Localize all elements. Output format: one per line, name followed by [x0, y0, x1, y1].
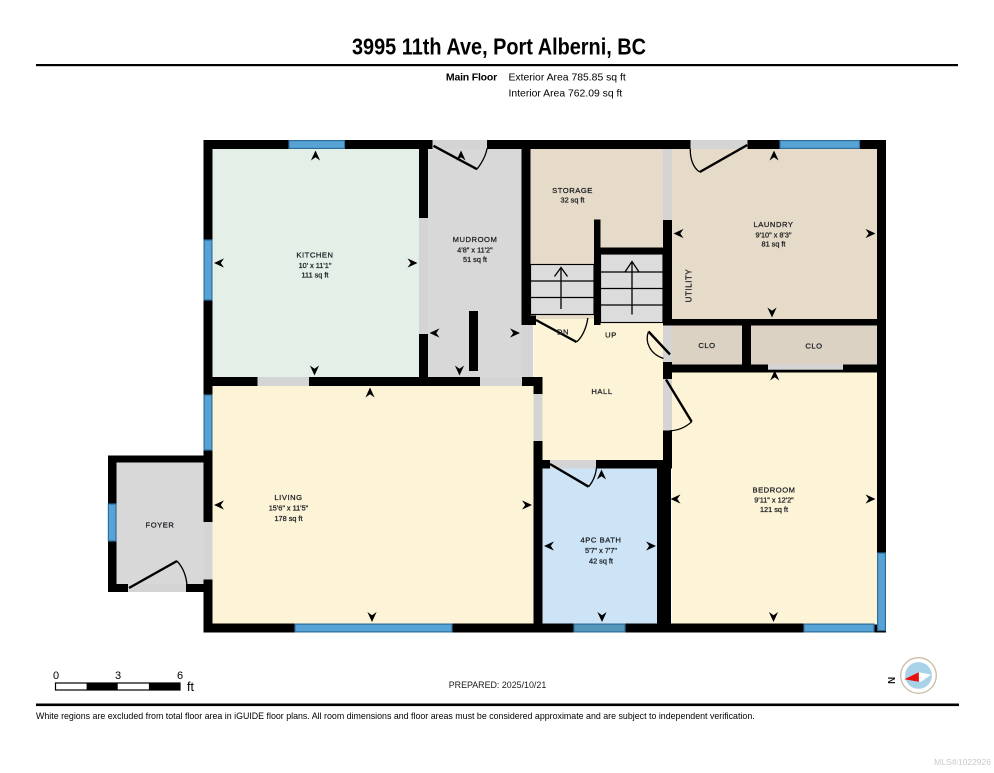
svg-text:4'8" x 11'2": 4'8" x 11'2"	[457, 246, 493, 255]
svg-text:ft: ft	[187, 680, 194, 694]
svg-text:111 sq ft: 111 sq ft	[302, 271, 329, 280]
svg-text:51 sq ft: 51 sq ft	[463, 255, 487, 264]
svg-text:3: 3	[115, 670, 121, 682]
svg-text:DN: DN	[557, 328, 569, 337]
svg-text:FOYER: FOYER	[146, 521, 175, 530]
svg-text:White regions are excluded fro: White regions are excluded from total fl…	[36, 711, 755, 721]
svg-text:UTILITY: UTILITY	[685, 269, 694, 303]
svg-text:4PC BATH: 4PC BATH	[581, 536, 622, 545]
svg-text:CLO: CLO	[805, 342, 822, 351]
svg-text:3995 11th Ave, Port Alberni, B: 3995 11th Ave, Port Alberni, BC	[352, 34, 646, 60]
svg-text:BEDROOM: BEDROOM	[752, 486, 795, 495]
svg-text:N: N	[887, 677, 898, 684]
svg-text:PREPARED: 2025/10/21: PREPARED: 2025/10/21	[449, 680, 547, 690]
svg-text:6: 6	[177, 670, 183, 682]
svg-text:32 sq ft: 32 sq ft	[561, 196, 585, 205]
svg-text:0: 0	[53, 670, 59, 682]
svg-text:LIVING: LIVING	[274, 493, 302, 502]
svg-text:Interior Area 762.09 sq ft: Interior Area 762.09 sq ft	[509, 89, 623, 100]
svg-text:Main Floor: Main Floor	[446, 72, 497, 84]
svg-text:Exterior Area 785.85 sq ft: Exterior Area 785.85 sq ft	[509, 73, 626, 84]
svg-text:9'11" x 12'2": 9'11" x 12'2"	[754, 496, 794, 505]
svg-text:KITCHEN: KITCHEN	[296, 251, 333, 260]
svg-text:5'7" x 7'7": 5'7" x 7'7"	[585, 546, 617, 555]
svg-text:121 sq ft: 121 sq ft	[760, 505, 788, 514]
svg-text:CLO: CLO	[698, 341, 715, 350]
svg-text:15'6" x 11'5": 15'6" x 11'5"	[269, 504, 309, 513]
svg-text:81 sq ft: 81 sq ft	[762, 240, 786, 249]
svg-text:MUDROOM: MUDROOM	[453, 235, 498, 244]
svg-text:MLS®1022926: MLS®1022926	[934, 757, 991, 767]
svg-text:42 sq ft: 42 sq ft	[589, 557, 613, 566]
svg-text:LAUNDRY: LAUNDRY	[753, 220, 793, 229]
svg-text:UP: UP	[605, 331, 617, 340]
svg-text:HALL: HALL	[591, 387, 612, 396]
svg-text:178 sq ft: 178 sq ft	[275, 514, 303, 523]
svg-text:10' x 11'1": 10' x 11'1"	[299, 261, 332, 270]
svg-text:STORAGE: STORAGE	[552, 186, 593, 195]
svg-text:9'10" x 8'3": 9'10" x 8'3"	[756, 231, 792, 240]
